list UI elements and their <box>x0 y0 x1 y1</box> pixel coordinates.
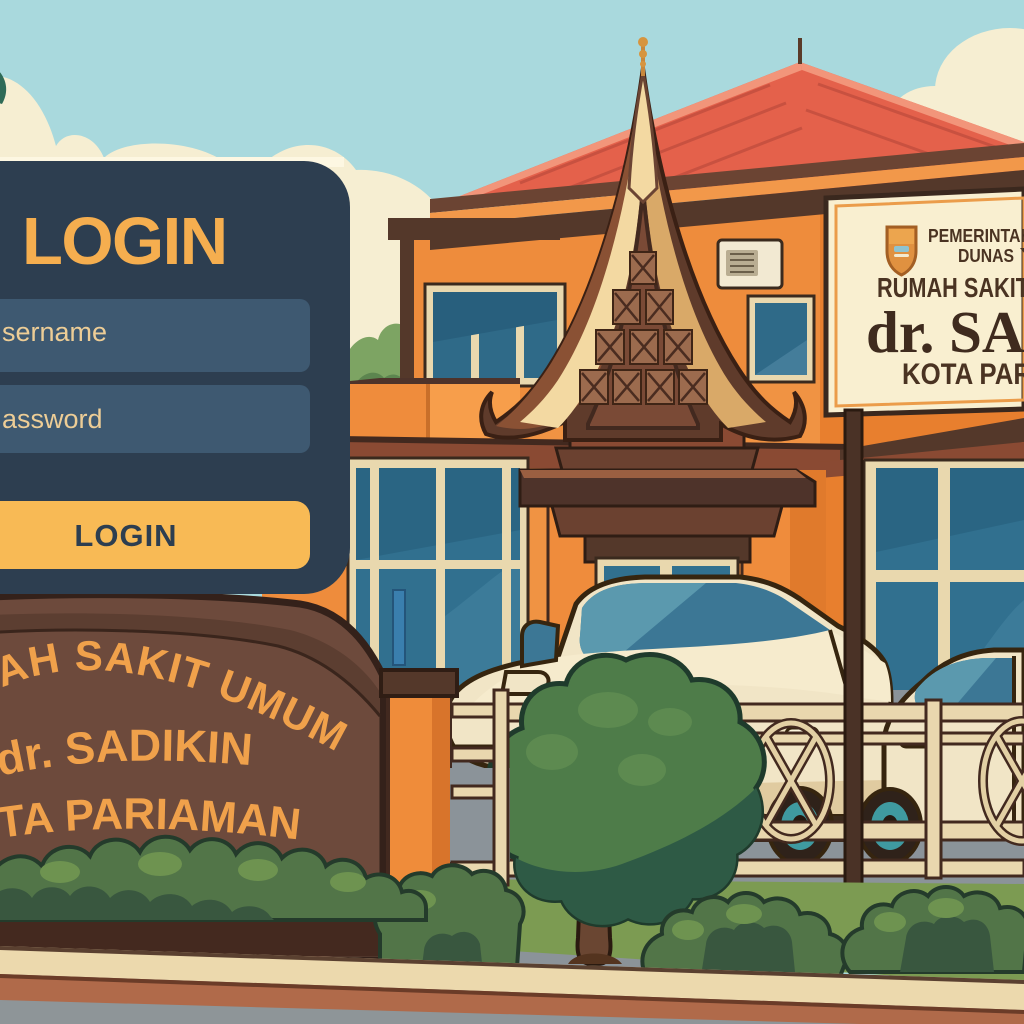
svg-text:PEMERINTAH: PEMERINTAH <box>928 226 1024 246</box>
svg-text:KOTA PAR: KOTA PAR <box>902 358 1024 391</box>
svg-text:LOGIN: LOGIN <box>74 518 177 553</box>
svg-text:DUNAS: DUNAS <box>958 246 1014 266</box>
svg-text:dr. SAD: dr. SAD <box>866 299 1024 365</box>
svg-text:assword: assword <box>2 404 103 434</box>
svg-text:sername: sername <box>2 317 107 347</box>
svg-text:LOGIN: LOGIN <box>22 204 227 279</box>
